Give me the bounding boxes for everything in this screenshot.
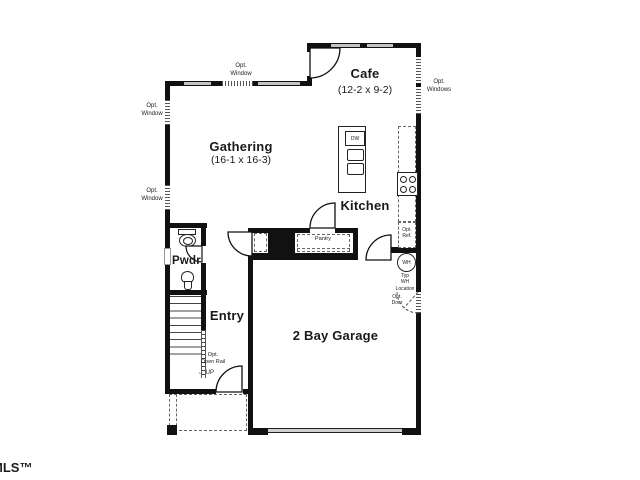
opt-window-label-top: Opt. Window: [227, 63, 255, 78]
room-dims-cafe: (12-2 x 9-2): [325, 84, 405, 97]
opt-window-label-left-upper: Opt. Window: [138, 103, 166, 118]
garage-entry-door-swing: [366, 235, 391, 260]
floor-plan: DW Opt. Ref. WH Typ WH Location Opt. Doo…: [0, 0, 640, 480]
opt-open-rail-label: Opt. Open Rail: [196, 352, 230, 366]
up-label: ← UP: [192, 370, 220, 378]
room-label-cafe: Cafe: [325, 66, 405, 82]
mls-watermark: MLS™: [0, 460, 52, 476]
room-label-kitchen: Kitchen: [330, 198, 400, 214]
opt-windows-label-right: Opt. Windows: [423, 79, 455, 94]
opt-door-leaf: [404, 292, 418, 308]
room-label-garage: 2 Bay Garage: [283, 328, 388, 344]
room-dims-gathering: (16-1 x 16-3): [191, 154, 291, 167]
opt-door-swing-arc: [397, 292, 418, 313]
room-label-pantry: Pantry: [305, 236, 341, 243]
room-label-entry: Entry: [203, 308, 251, 324]
room-label-pwdr: Pwdr: [170, 254, 203, 268]
opt-window-label-left-lower: Opt. Window: [138, 188, 166, 203]
room-label-gathering: Gathering: [195, 139, 287, 155]
closet-door-swing: [228, 232, 252, 256]
